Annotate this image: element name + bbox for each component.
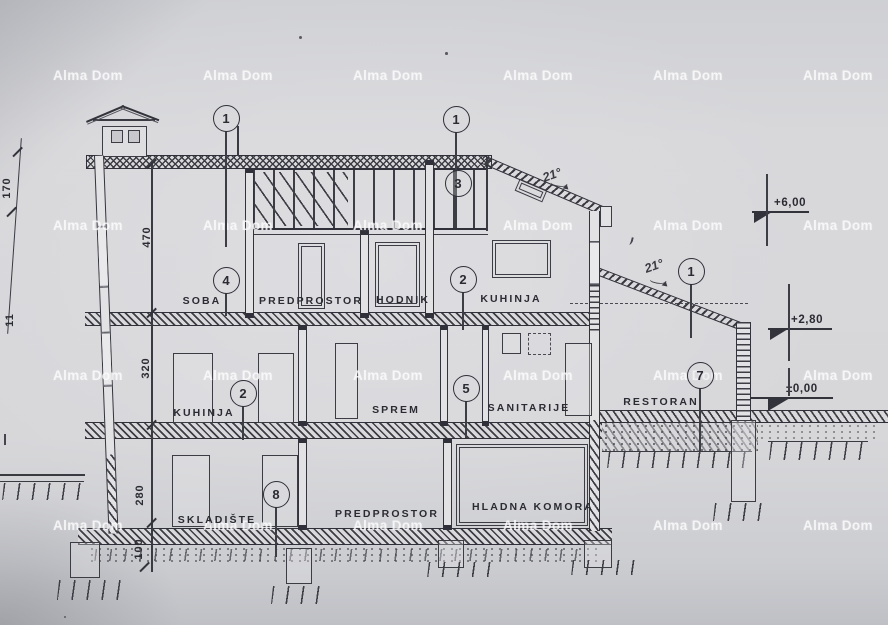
marker-leader — [690, 284, 691, 338]
marker-leader — [225, 293, 226, 316]
section-marker-3: 3 — [445, 170, 472, 197]
slope-annotation: 21° — [643, 256, 665, 275]
watermark: Alma Dom — [803, 518, 873, 533]
watermark: Alma Dom — [353, 518, 423, 533]
watermark: Alma Dom — [353, 218, 423, 233]
section-marker-7: 7 — [687, 362, 714, 389]
section-marker-1: 1 — [678, 258, 705, 285]
room-label-sanitarije: SANITARIJE — [488, 402, 571, 414]
marker-leader — [465, 401, 466, 438]
marker-leader — [225, 131, 226, 247]
watermark: Alma Dom — [803, 68, 873, 83]
elevation-value: +6,00 — [774, 197, 806, 209]
watermark: Alma Dom — [353, 368, 423, 383]
watermark: Alma Dom — [203, 218, 273, 233]
watermark: Alma Dom — [503, 218, 573, 233]
room-label-soba: SOBA — [183, 295, 222, 307]
elevation-value: ±0,00 — [786, 383, 818, 395]
watermark: Alma Dom — [653, 518, 723, 533]
elevation-axis-line — [788, 284, 790, 361]
architectural-section-drawing: Alma DomAlma DomAlma DomAlma DomAlma Dom… — [0, 0, 888, 625]
slope-arrow — [550, 177, 568, 189]
room-label-sprem: SPREM — [372, 404, 420, 416]
watermark: Alma Dom — [653, 218, 723, 233]
watermark: Alma Dom — [53, 218, 123, 233]
dimension-470: 470 — [141, 226, 153, 247]
elevation-axis-line — [766, 174, 768, 246]
dimension-170: 170 — [1, 177, 13, 198]
marker-leader — [275, 507, 276, 557]
dimension-280: 280 — [134, 484, 146, 505]
dimension-11: 11 — [4, 313, 16, 327]
dimension-320: 320 — [140, 357, 152, 378]
room-label-kuhinja: KUHINJA — [480, 293, 541, 305]
section-marker-1: 1 — [213, 105, 240, 132]
watermark: Alma Dom — [53, 368, 123, 383]
watermark: Alma Dom — [53, 68, 123, 83]
room-label-predprostor: PREDPROSTOR — [335, 508, 439, 520]
watermark: Alma Dom — [203, 68, 273, 83]
watermark: Alma Dom — [803, 368, 873, 383]
section-marker-1: 1 — [443, 106, 470, 133]
marker-leader — [242, 406, 243, 440]
section-marker-8: 8 — [263, 481, 290, 508]
elevation-triangle — [768, 398, 790, 411]
section-marker-2: 2 — [450, 266, 477, 293]
watermark: Alma Dom — [803, 218, 873, 233]
section-marker-5: 5 — [453, 375, 480, 402]
watermark: Alma Dom — [53, 518, 123, 533]
watermark: Alma Dom — [353, 68, 423, 83]
room-label-kuhinja: KUHINJA — [173, 407, 234, 419]
marker-leader — [462, 292, 463, 330]
room-label-predprostor: PREDPROSTOR — [259, 295, 363, 307]
watermark: Alma Dom — [503, 368, 573, 383]
elevation-triangle — [770, 329, 788, 340]
room-label-skladi-te: SKLADIŠTE — [178, 514, 256, 526]
section-marker-4: 4 — [213, 267, 240, 294]
watermark: Alma Dom — [503, 518, 573, 533]
dimension-100: 100 — [133, 538, 145, 559]
elevation-level-line — [750, 397, 833, 399]
section-marker-2: 2 — [230, 380, 257, 407]
room-label-restoran: RESTORAN — [623, 396, 699, 408]
marker-leader — [699, 388, 700, 452]
slope-arrow — [649, 274, 667, 286]
annotations-layer: Alma DomAlma DomAlma DomAlma DomAlma Dom… — [0, 0, 888, 625]
elevation-axis-line — [788, 368, 790, 396]
watermark: Alma Dom — [503, 68, 573, 83]
watermark: Alma Dom — [653, 68, 723, 83]
elevation-triangle — [754, 212, 772, 223]
room-label-hladna-komora: HLADNA KOMORA — [472, 501, 594, 513]
elevation-value: +2,80 — [791, 314, 823, 326]
room-label-hodnik: HODNIK — [376, 294, 430, 306]
